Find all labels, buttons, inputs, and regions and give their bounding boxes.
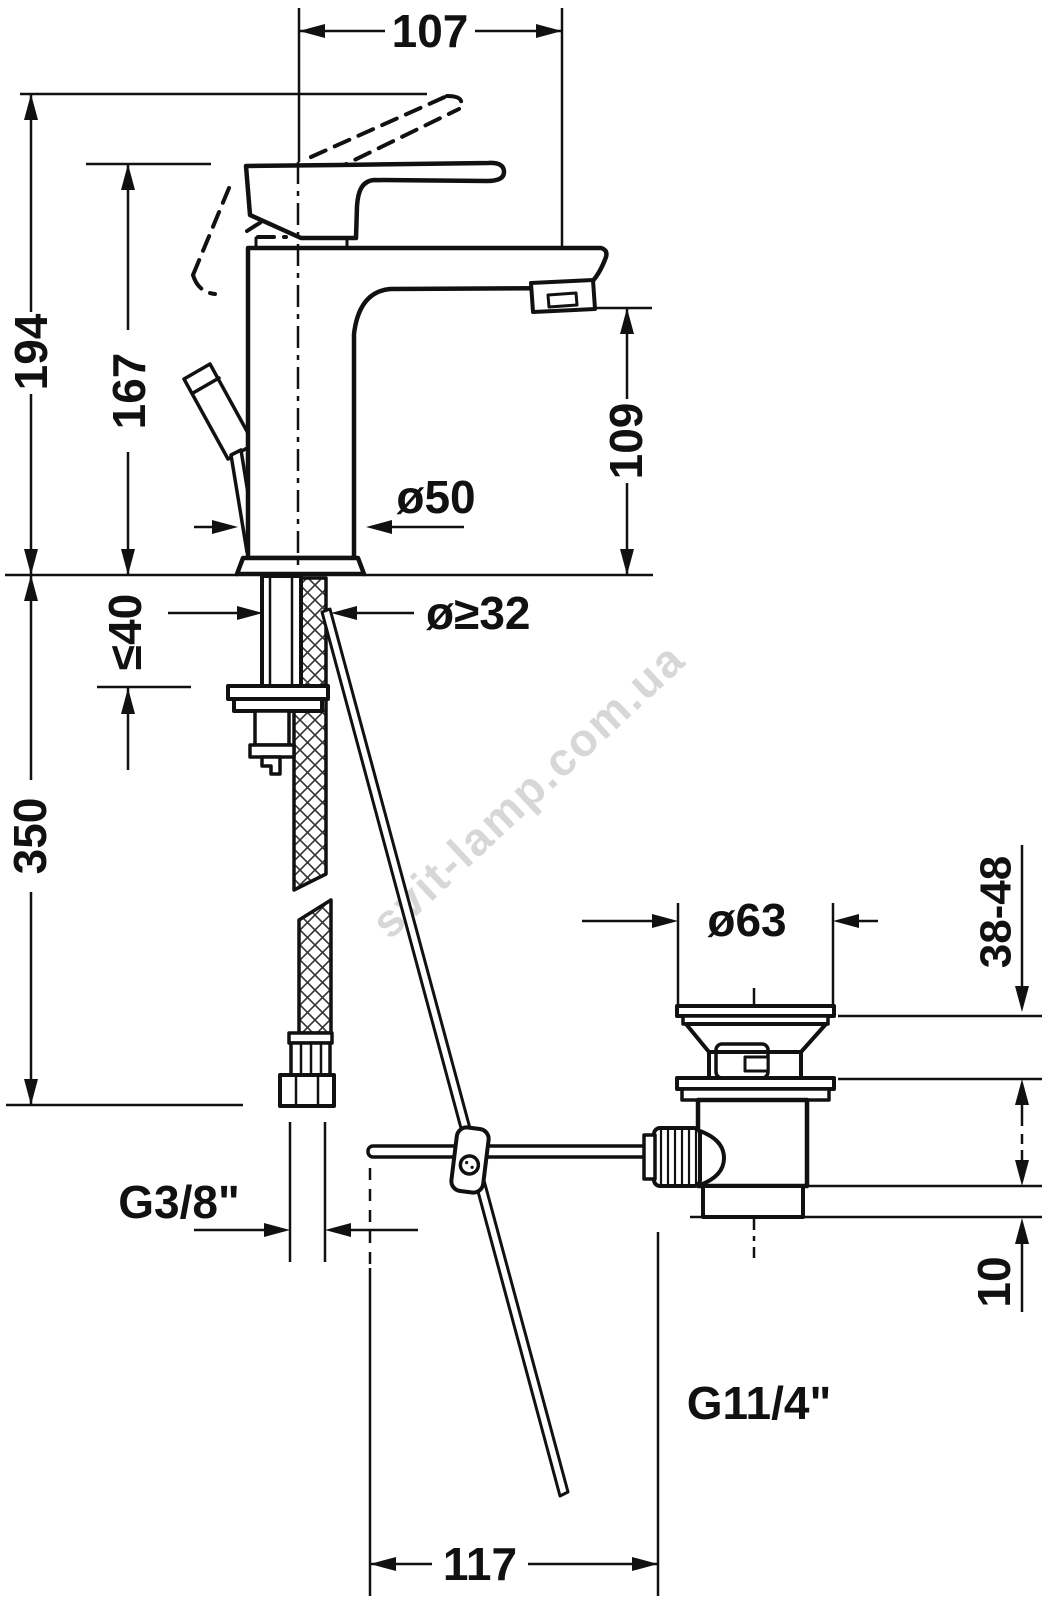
dim-label-38-48: 38-48 [972, 856, 1021, 969]
dim-label-107: 107 [392, 5, 469, 57]
dim-label-167: 167 [103, 353, 155, 430]
mounting-nut [234, 699, 322, 711]
dim-label-10: 10 [968, 1256, 1020, 1307]
dim-label-g38: G3/8" [118, 1176, 240, 1228]
dim-label-350: 350 [4, 798, 56, 875]
flex-hose-lower [299, 900, 331, 1033]
hose-hex-nut [280, 1075, 334, 1106]
dim-label-109: 109 [600, 403, 652, 480]
drain-tailpiece [703, 1186, 803, 1217]
dim-label-dia63: ø63 [707, 894, 786, 946]
dim-label-g114: G11/4" [687, 1377, 832, 1429]
base-flange [237, 558, 364, 574]
dim-label-117: 117 [443, 1538, 517, 1590]
faucet-dimension-diagram: svit-lamp.com.ua [0, 0, 1054, 1600]
technical-drawing-page: svit-lamp.com.ua [0, 0, 1054, 1600]
rod-clamp-joint [450, 1126, 490, 1193]
dim-label-dia50: ø50 [396, 471, 475, 523]
dim-label-194: 194 [5, 313, 57, 390]
spout-aerator [531, 280, 595, 312]
dim-label-max40: ≤40 [99, 594, 151, 670]
threaded-shank [262, 576, 301, 686]
dim-label-dia32: ø≥32 [426, 587, 531, 639]
horizontal-linkage-rod [368, 1146, 654, 1157]
